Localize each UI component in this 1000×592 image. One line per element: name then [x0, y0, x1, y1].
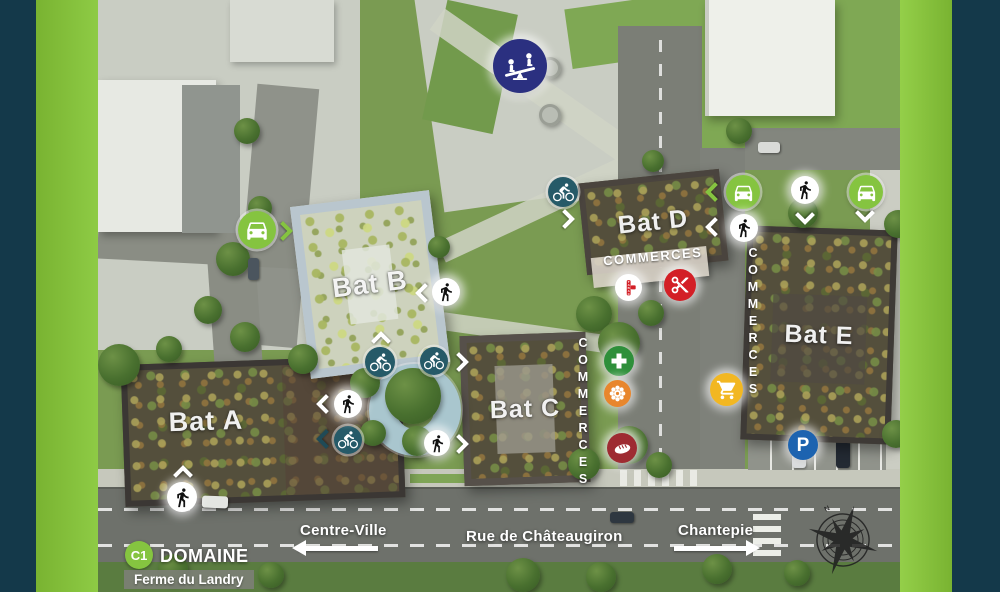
parking-letter: P [797, 436, 810, 455]
street-car-3 [248, 258, 259, 280]
tree [428, 236, 450, 258]
tree [702, 554, 732, 584]
project-code: C1 [131, 548, 148, 563]
direction-east-label: Chantepie [678, 522, 753, 539]
car-access-west-icon [238, 211, 276, 249]
pedestrian-access-icon-4 [167, 482, 197, 512]
existing-building-top [230, 0, 334, 62]
pharmacy-cross-icon [604, 346, 634, 376]
parked-car-4 [836, 440, 850, 468]
street-car-4 [758, 142, 780, 153]
tree [638, 300, 664, 326]
project-subtitle: Ferme du Landry [124, 570, 254, 589]
pedestrian-access-icon-2 [334, 390, 362, 418]
tree [156, 336, 182, 362]
lane-dash-1 [98, 508, 900, 511]
supermarket-cart-icon [710, 373, 743, 406]
pedestrian-access-icon-1 [432, 278, 460, 306]
tree [385, 368, 441, 424]
building-label: Bat A [168, 405, 244, 439]
svg-text:N: N [823, 505, 831, 514]
building-label: Bat B [331, 265, 410, 305]
building-label: Bat C [489, 393, 560, 424]
tree [726, 118, 752, 144]
tree [506, 558, 540, 592]
bike-access-icon-3 [420, 347, 448, 375]
tree [646, 452, 672, 478]
building-label: Bat D [617, 204, 690, 240]
compass-rose-icon: N [803, 500, 883, 580]
tree [98, 344, 140, 386]
car-access-north-icon [726, 175, 760, 209]
tree [230, 322, 260, 352]
project-code-badge: C1 [125, 541, 153, 569]
tree [360, 420, 386, 446]
pedestrian-access-icon-6 [791, 176, 819, 204]
existing-building-wing [182, 85, 240, 233]
commerces-label-bat-c: COMMERCES [576, 336, 590, 466]
building-label: Bat E [784, 319, 854, 350]
commerces-label-bat-e: COMMERCES [746, 246, 760, 382]
tree [258, 562, 284, 588]
tree [288, 344, 318, 374]
tree [216, 242, 250, 276]
playground-seesaw-icon [493, 39, 547, 93]
project-title: DOMAINE [160, 546, 249, 567]
building-bat-e: Bat E [740, 225, 897, 444]
tree [194, 296, 222, 324]
bike-access-icon-1 [548, 177, 578, 207]
existing-building-top-right [705, 0, 835, 116]
direction-west-label: Centre-Ville [300, 522, 387, 539]
site-plan: Bat A Bat B Bat C Bat D Bat E [0, 0, 1000, 592]
florist-flower-icon [604, 380, 631, 407]
tree [642, 150, 664, 172]
right-accent-bar [900, 0, 952, 592]
masterplan-map: Bat A Bat B Bat C Bat D Bat E [98, 0, 900, 592]
bike-access-icon-4 [334, 426, 362, 454]
hairdresser-scissors-icon [664, 269, 696, 301]
street-car-1 [202, 496, 228, 509]
bakery-bread-icon [607, 433, 637, 463]
pedestrian-access-icon-5 [730, 214, 758, 242]
left-accent-bar [36, 0, 98, 592]
tabac-icon: TABAC [615, 274, 642, 301]
parking-icon: P [788, 430, 818, 460]
main-street-label: Rue de Châteaugiron [466, 528, 623, 545]
street-car-2 [610, 512, 634, 523]
arrow-west-icon [298, 546, 378, 551]
tree [234, 118, 260, 144]
fountain-2 [539, 104, 561, 126]
bike-access-icon-2 [365, 347, 395, 377]
chevron-right-icon [555, 209, 575, 229]
arrow-east-icon [674, 546, 754, 551]
pedestrian-access-icon-3 [424, 430, 450, 456]
tree [586, 562, 616, 592]
